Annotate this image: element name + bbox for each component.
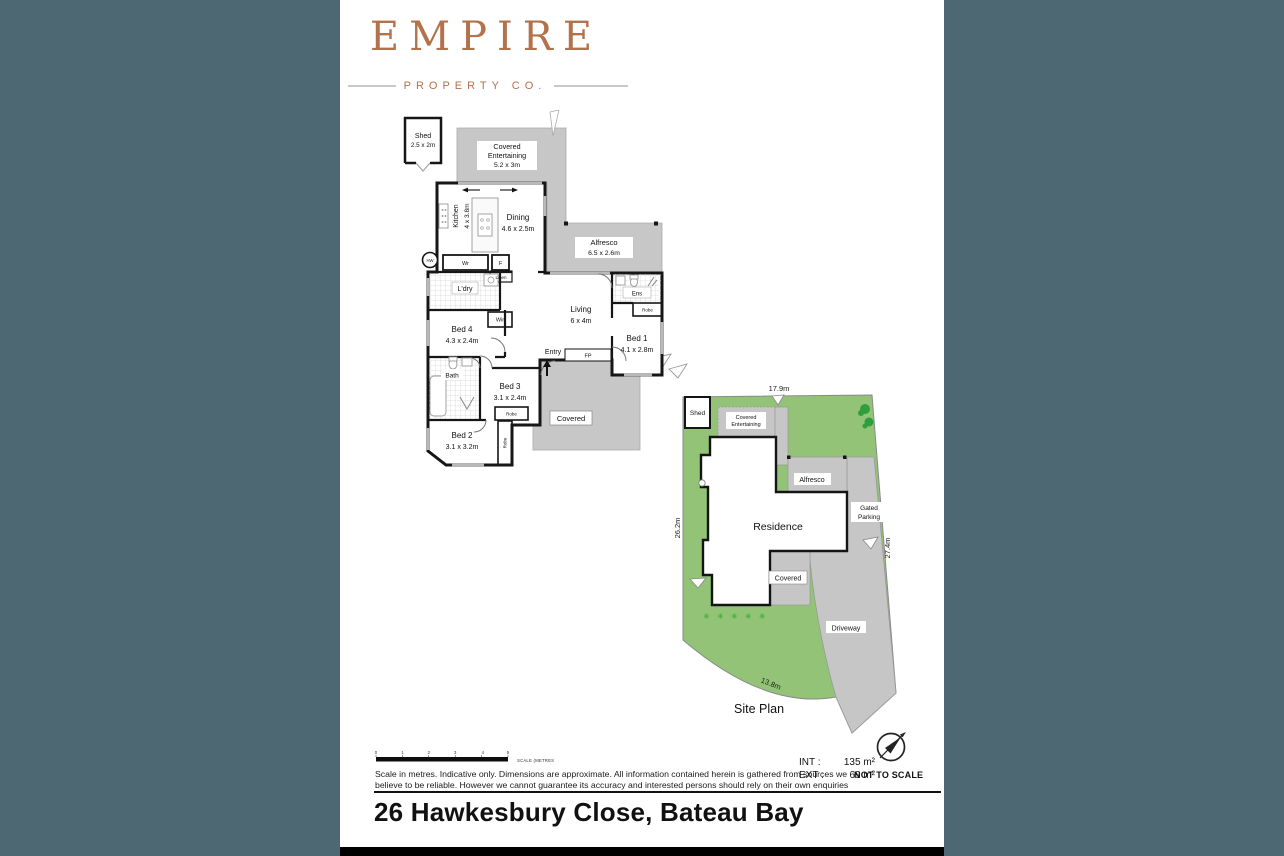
property-address: 26 Hawkesbury Close, Bateau Bay [374, 797, 804, 828]
scale-tick: 2 [428, 750, 431, 755]
toilet-icon [630, 275, 638, 279]
covered-label: Covered [557, 414, 585, 423]
post-icon [843, 456, 847, 460]
bed4-dims: 4.3 x 2.4m [446, 338, 479, 345]
bed1-label: Bed 1 [627, 334, 648, 343]
disclaimer-line2: believe to be reliable. However we canno… [375, 780, 953, 791]
scale-tick: 4 [482, 750, 485, 755]
scale-tick: 5 [507, 750, 510, 755]
fireplace-label: FP [584, 354, 591, 360]
tree-icon [858, 410, 864, 416]
robe-label: Robe [642, 308, 653, 313]
shed-dims: 2.5 x 2m [411, 142, 435, 149]
tree-icon [863, 424, 868, 429]
scale-tick-marks [376, 755, 508, 757]
ensuite-label: Ens [632, 292, 642, 298]
living-label: Living [571, 305, 592, 314]
logo-tagline-row: PROPERTY CO. [342, 80, 634, 92]
dining-dims: 4.6 x 2.5m [502, 226, 535, 233]
scale-tick: 0 [375, 750, 378, 755]
alfresco-label: Alfresco [590, 238, 617, 247]
floor-plan: Shed 2.5 x 2m Covered Entertaining 5.2 x… [400, 110, 700, 470]
burner-icon [442, 221, 444, 223]
wr-label: Wr [462, 261, 469, 267]
shed-structure [405, 118, 441, 163]
robe-label: Robe [506, 412, 517, 417]
post-icon [564, 222, 568, 226]
covered-entertaining-label: Entertaining [731, 422, 760, 428]
living-dims: 6 x 4m [570, 318, 591, 325]
bath-label: Bath [445, 373, 459, 380]
internal-area: INT :135 m² [799, 757, 875, 768]
covered-entertaining-label: Covered [493, 142, 520, 151]
basin-icon [462, 358, 472, 366]
shed-label: Shed [690, 410, 706, 417]
basin-icon [616, 276, 625, 285]
hw-label: HW [427, 258, 434, 263]
burner-icon [442, 209, 444, 211]
laundry-label: L'dry [458, 286, 473, 293]
burner-icon [442, 215, 444, 217]
dimension-left: 26.2m [675, 518, 682, 539]
linen-label: Linen [495, 275, 507, 280]
alfresco-dims: 6.5 x 2.6m [588, 250, 620, 257]
dimension-right: 27.4m [883, 538, 892, 559]
tank-icon [699, 480, 705, 486]
logo-rule-left [348, 85, 396, 87]
bed2-dims: 3.1 x 3.2m [446, 444, 479, 451]
site-plan-title: Site Plan [734, 702, 784, 716]
bed3-dims: 3.1 x 2.4m [494, 395, 527, 402]
bed2-label: Bed 2 [452, 431, 473, 440]
post-icon [654, 222, 658, 226]
robe-label: Robe [503, 437, 508, 448]
gated-parking-label: Gated [860, 505, 878, 512]
wir-label: Wir [496, 318, 504, 324]
covered-entertaining-dims: 5.2 x 3m [494, 162, 520, 169]
boundary-flag-icon [669, 364, 687, 378]
post-icon [787, 456, 791, 460]
covered-label: Covered [775, 576, 802, 583]
burner-icon [445, 209, 447, 211]
kitchen-label: Kitchen [453, 204, 460, 227]
entry-label: Entry [545, 349, 562, 356]
cooktop-icon [478, 214, 492, 236]
toilet-icon [449, 357, 457, 361]
logo-rule-right [554, 85, 628, 87]
dimension-top: 17.9m [769, 384, 790, 393]
not-to-scale-note: NOT TO SCALE [854, 770, 923, 780]
bed1-dims: 4.1 x 2.8m [621, 347, 654, 354]
kitchen-bench [439, 204, 448, 228]
burner-icon [445, 215, 447, 217]
covered-entertaining-label: Entertaining [488, 151, 526, 160]
logo-tagline: PROPERTY CO. [404, 80, 547, 92]
burner-icon [445, 221, 447, 223]
scale-bar-rule [376, 757, 508, 762]
shrub-row-icon: ✳ ✳ ✳ ✳ ✳ [703, 612, 768, 621]
divider-rule [374, 791, 941, 793]
alfresco-label: Alfresco [799, 477, 824, 484]
scale-tick: 1 [401, 750, 404, 755]
site-plan: ✳ ✳ ✳ ✳ ✳ Shed Covered Entertaining Alfr… [675, 380, 905, 740]
bed3-label: Bed 3 [500, 382, 521, 391]
kitchen-dims: 4 x 3.8m [464, 203, 471, 229]
bathtub-icon [430, 376, 446, 416]
shed-label: Shed [415, 133, 431, 140]
scale-tick: 3 [454, 750, 457, 755]
covered-entertaining-label: Covered [736, 415, 757, 421]
logo-brand: EMPIRE [340, 14, 632, 60]
driveway-label: Driveway [832, 626, 861, 633]
residence-label: Residence [753, 521, 803, 533]
compass-icon [868, 722, 914, 768]
scale-caption: SCALE (METRES) [517, 758, 554, 763]
footer-bar [340, 847, 944, 856]
ext-label: EXT : [799, 770, 831, 781]
bed4-label: Bed 4 [452, 325, 473, 334]
shed-door-icon [416, 163, 430, 171]
dining-label: Dining [507, 213, 530, 222]
scale-bar: 0 1 2 3 4 5 SCALE (METRES) [374, 748, 554, 764]
gated-parking-label: Parking [858, 514, 880, 521]
int-label: INT : [799, 757, 831, 768]
